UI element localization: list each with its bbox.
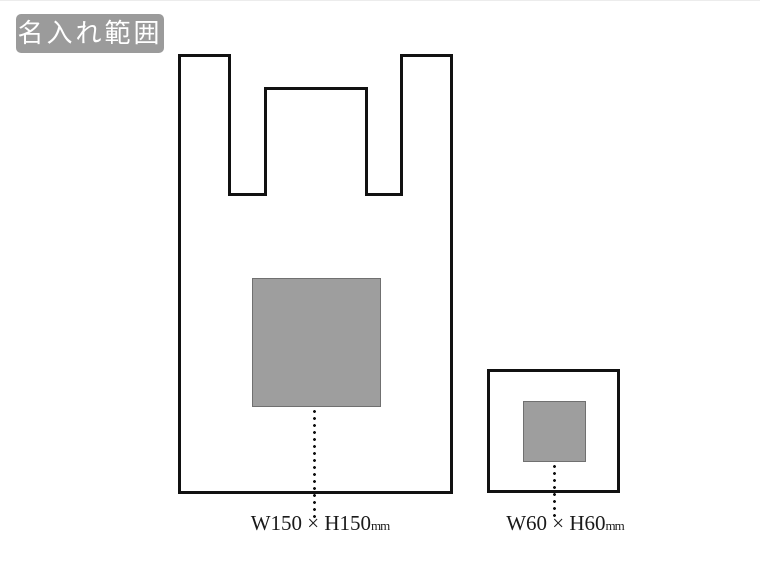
large-dimension-unit: mm bbox=[371, 518, 389, 533]
small-dimension-label: W60 × H60mm bbox=[480, 511, 650, 536]
large-leader-line bbox=[313, 408, 316, 518]
print-area-diagram: 名入れ範囲 W150 × H150mm W60 × H60mm bbox=[0, 0, 760, 571]
large-print-area bbox=[252, 278, 381, 407]
small-dimension-value: W60 × H60 bbox=[506, 511, 605, 535]
bag-center-panel bbox=[264, 87, 368, 196]
bag-right-handle-inner bbox=[400, 54, 403, 196]
bag-left-handle-top bbox=[178, 54, 231, 57]
large-dimension-label: W150 × H150mm bbox=[220, 511, 420, 536]
small-print-area bbox=[523, 401, 586, 462]
large-dimension-value: W150 × H150 bbox=[251, 511, 371, 535]
bag-right-handle-top bbox=[400, 54, 453, 57]
small-dimension-unit: mm bbox=[606, 518, 624, 533]
print-area-badge: 名入れ範囲 bbox=[16, 14, 164, 53]
bag-left-handle-inner bbox=[228, 54, 231, 196]
